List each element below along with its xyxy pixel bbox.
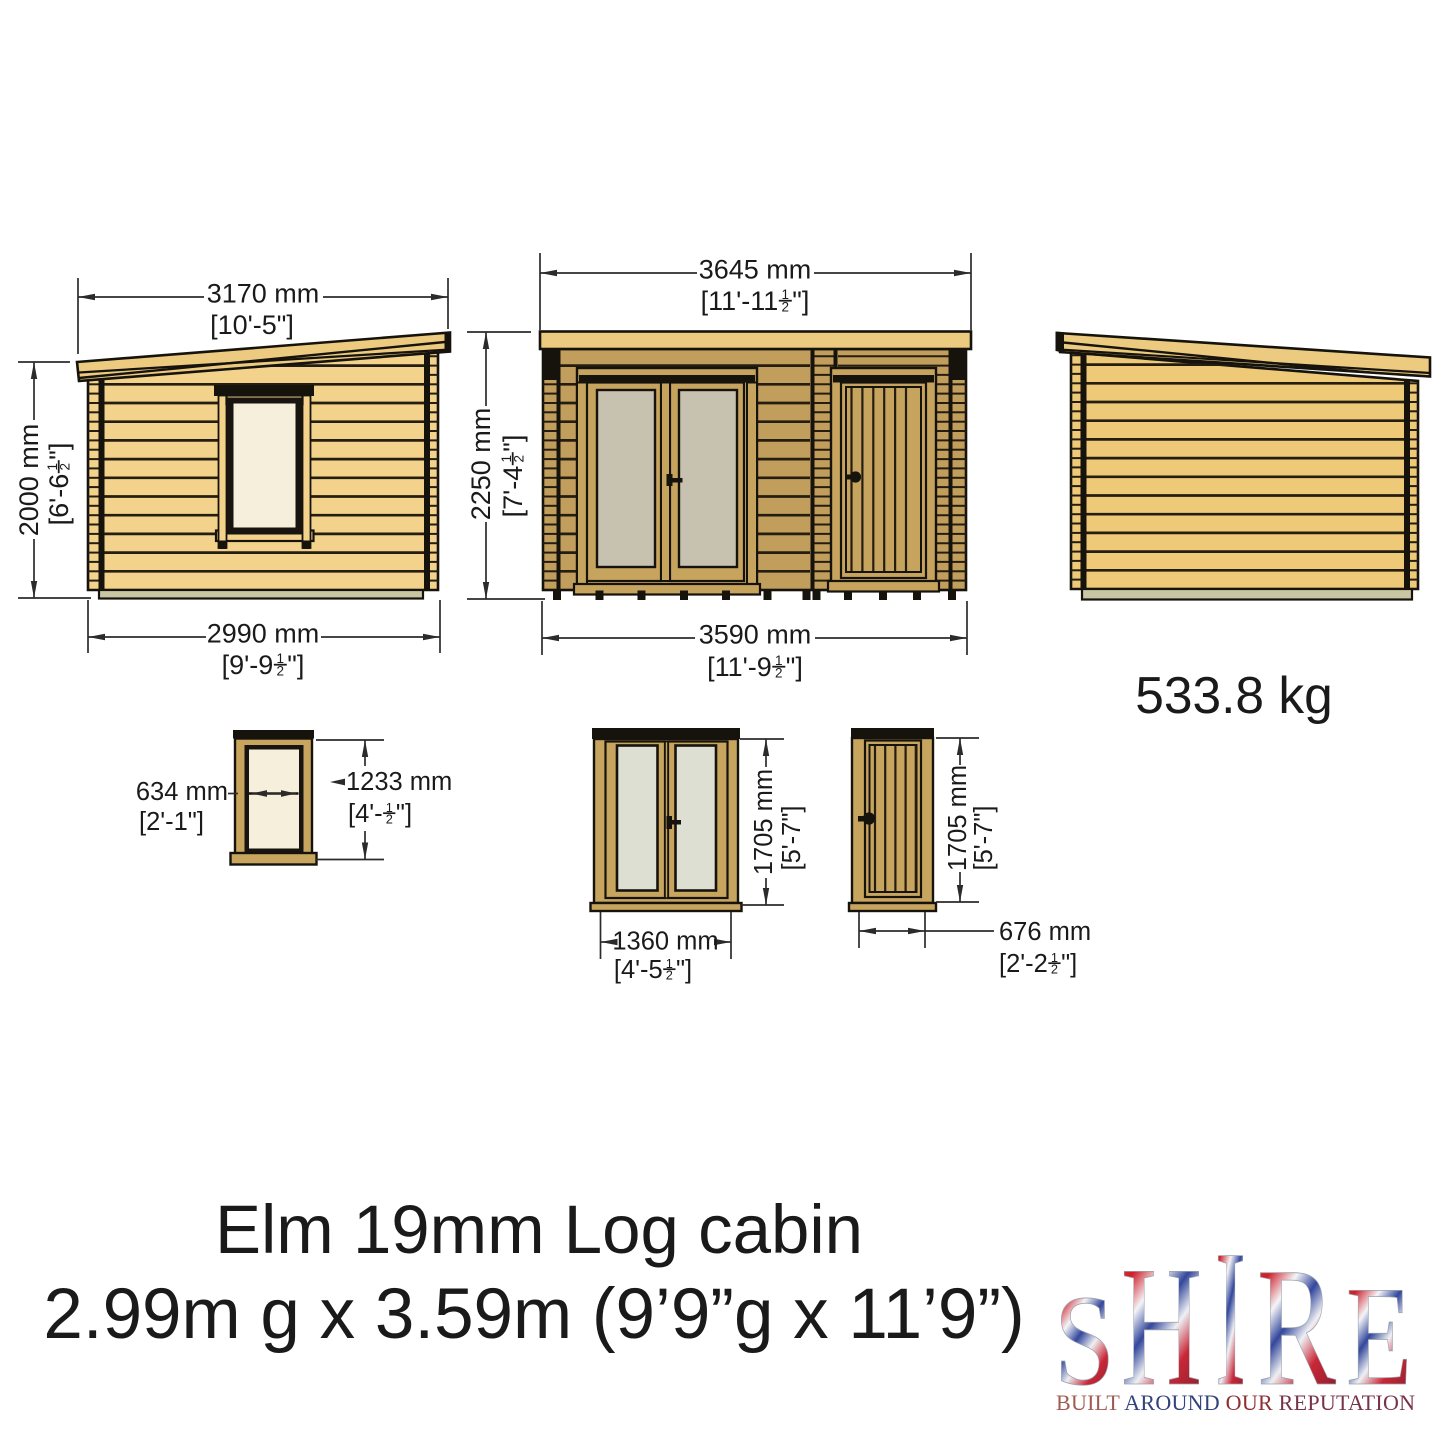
- svg-text:"]: "]: [676, 956, 692, 984]
- svg-text:[7'-4: [7'-4: [498, 466, 528, 518]
- svg-text:2.99m g x 3.59m (9’9”g x 11’9”: 2.99m g x 3.59m (9’9”g x 11’9”): [43, 1275, 1024, 1354]
- svg-text:2: 2: [58, 463, 73, 471]
- svg-text:"]: "]: [287, 650, 304, 680]
- svg-text:2: 2: [277, 664, 285, 679]
- svg-text:2990 mm: 2990 mm: [207, 619, 320, 649]
- svg-text:[4'-: [4'-: [348, 800, 383, 828]
- svg-text:"]: "]: [498, 435, 528, 452]
- svg-text:BUILT AROUND OUR REPUTATION: BUILT AROUND OUR REPUTATION: [1056, 1390, 1415, 1415]
- svg-text:[5'-7"]: [5'-7"]: [778, 806, 806, 871]
- svg-text:1233 mm: 1233 mm: [346, 768, 452, 796]
- svg-text:[2'-1"]: [2'-1"]: [139, 808, 204, 836]
- svg-text:"]: "]: [396, 800, 412, 828]
- svg-text:2: 2: [782, 300, 790, 315]
- svg-text:Elm 19mm Log cabin: Elm 19mm Log cabin: [215, 1191, 863, 1268]
- svg-text:3590 mm: 3590 mm: [699, 620, 812, 650]
- svg-text:[4'-5: [4'-5: [614, 956, 663, 984]
- svg-text:2: 2: [775, 666, 783, 681]
- svg-text:1360 mm: 1360 mm: [612, 928, 718, 956]
- svg-text:1705 mm: 1705 mm: [944, 765, 972, 871]
- svg-text:2: 2: [386, 812, 393, 827]
- svg-text:3170 mm: 3170 mm: [207, 279, 320, 309]
- svg-text:2000 mm: 2000 mm: [14, 424, 44, 537]
- svg-text:2: 2: [512, 455, 527, 463]
- svg-text:"]: "]: [1061, 950, 1077, 978]
- svg-text:"]: "]: [786, 652, 803, 682]
- svg-text:"]: "]: [44, 443, 74, 460]
- svg-text:[9'-9: [9'-9: [222, 650, 274, 680]
- svg-text:[11'-11: [11'-11: [701, 286, 779, 316]
- svg-text:[11'-9: [11'-9: [707, 652, 772, 682]
- svg-text:[6'-6: [6'-6: [44, 474, 74, 526]
- svg-text:634 mm: 634 mm: [136, 778, 228, 806]
- svg-text:3645 mm: 3645 mm: [699, 255, 812, 285]
- svg-text:2: 2: [666, 968, 673, 983]
- svg-text:"]: "]: [792, 286, 809, 316]
- svg-text:533.8 kg: 533.8 kg: [1135, 666, 1333, 724]
- svg-text:676 mm: 676 mm: [999, 918, 1091, 946]
- svg-text:[2'-2: [2'-2: [999, 950, 1048, 978]
- svg-text:[5'-7"]: [5'-7"]: [970, 806, 998, 871]
- svg-text:2: 2: [1051, 962, 1058, 977]
- svg-text:[10'-5"]: [10'-5"]: [210, 310, 294, 340]
- svg-text:1705 mm: 1705 mm: [750, 769, 778, 875]
- svg-text:2250 mm: 2250 mm: [466, 408, 496, 521]
